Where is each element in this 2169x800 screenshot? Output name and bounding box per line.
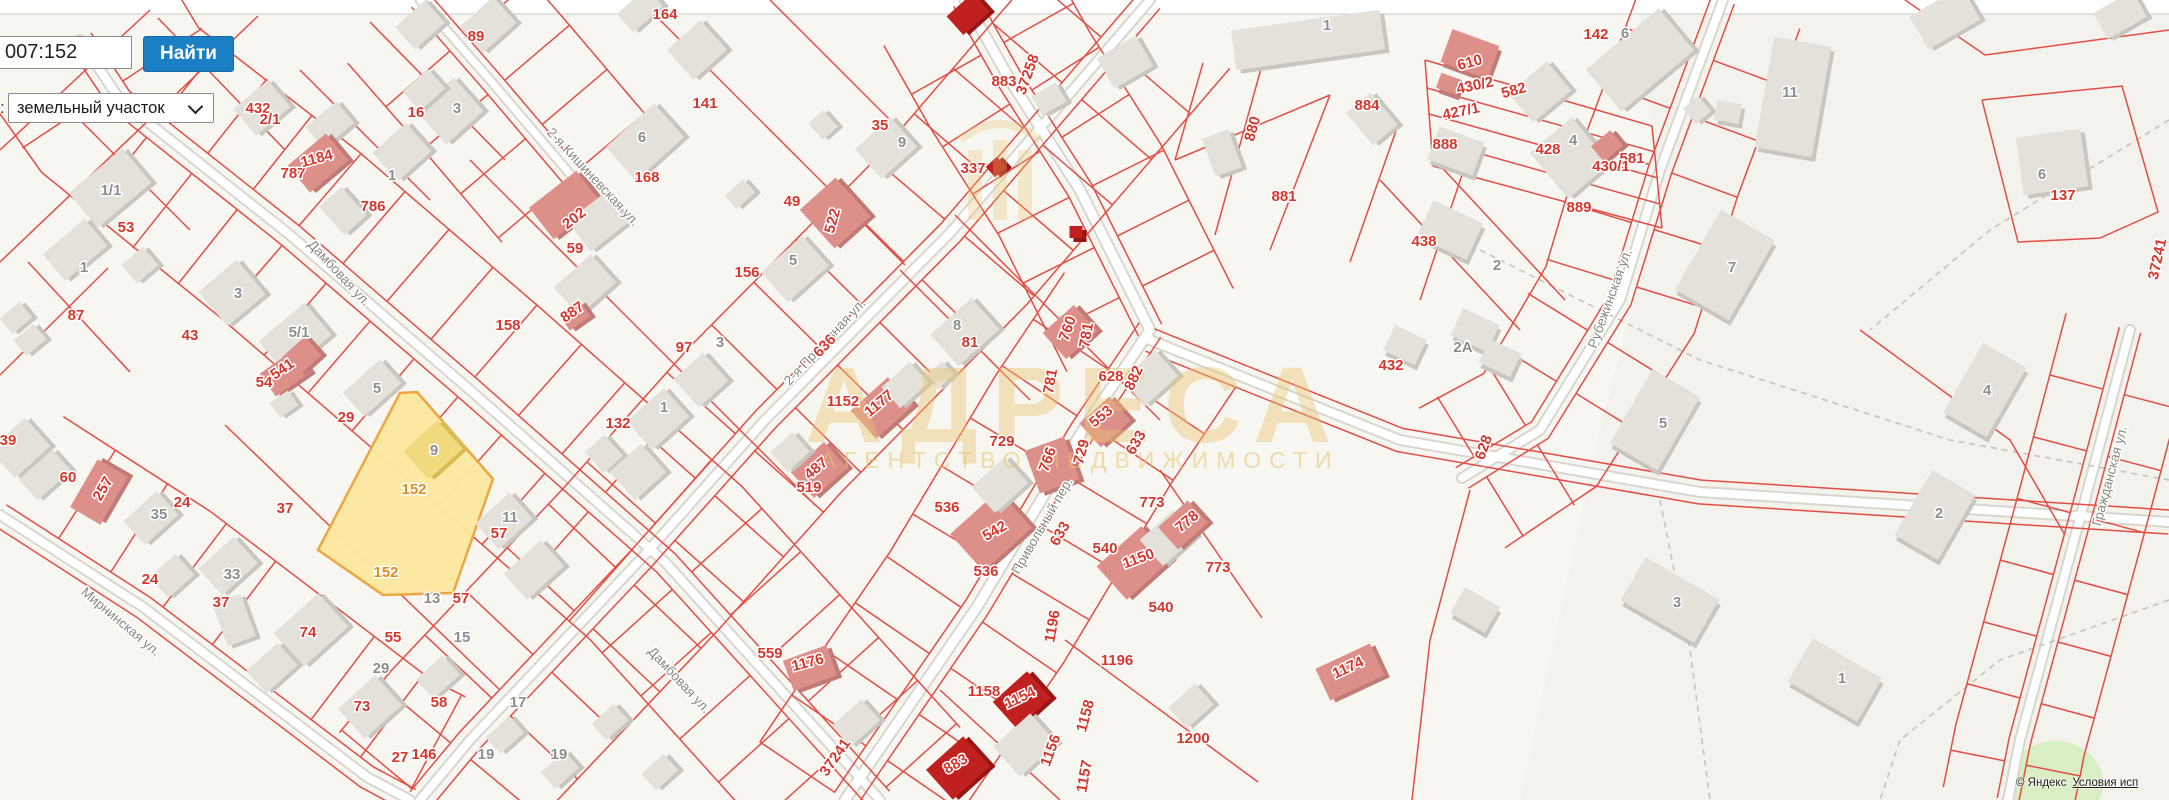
house-number: 8 bbox=[953, 317, 961, 334]
parcel-number: 1196 bbox=[1101, 652, 1134, 669]
parcel-number: 773 bbox=[1205, 559, 1230, 576]
house-number: 19 bbox=[478, 746, 495, 763]
house-number: 1 bbox=[660, 399, 668, 416]
parcel-number: 74 bbox=[300, 624, 317, 641]
parcel-number: 16 bbox=[408, 104, 425, 121]
house-number: 33 bbox=[224, 566, 241, 583]
house-number: 4 bbox=[1569, 132, 1578, 149]
parcel-number: 43 bbox=[182, 327, 199, 344]
house-number: 2А bbox=[1453, 339, 1472, 356]
parcel-number: 164 bbox=[652, 6, 678, 23]
house-number: 35 bbox=[151, 506, 168, 523]
building bbox=[2016, 129, 2088, 195]
house-number: 1 bbox=[80, 259, 88, 276]
object-type-select[interactable]: земельный участок bbox=[8, 93, 214, 123]
house-number: 11 bbox=[502, 509, 518, 526]
house-number: 5 bbox=[789, 252, 797, 269]
chevron-down-icon bbox=[188, 98, 204, 114]
parcel-number: 773 bbox=[1139, 494, 1164, 511]
house-number: 13 bbox=[424, 590, 441, 607]
parcel-number: 519 bbox=[796, 479, 821, 496]
parcel-number: 59 bbox=[567, 240, 584, 257]
parcel-number: 729 bbox=[989, 433, 1014, 450]
parcel-number: 786 bbox=[360, 198, 385, 215]
parcel-number: 438 bbox=[1411, 233, 1436, 250]
house-number: 5 bbox=[373, 380, 381, 397]
parcel-number: 881 bbox=[1271, 188, 1296, 205]
parcel-number: 57 bbox=[453, 590, 470, 607]
house-number: 19 bbox=[551, 746, 568, 763]
parcel-number: 888 bbox=[1432, 136, 1457, 153]
house-number: 15 bbox=[454, 629, 471, 646]
parcel-number: 536 bbox=[973, 563, 998, 580]
parcel-number: 536 bbox=[934, 499, 959, 516]
parcel-number: 57 bbox=[491, 525, 508, 542]
building bbox=[1714, 100, 1742, 124]
parcel-number: 1200 bbox=[1176, 730, 1209, 747]
house-number: 9 bbox=[898, 134, 906, 151]
parcel-number: 430/1 bbox=[1592, 158, 1630, 175]
parcel-number: 24 bbox=[142, 571, 159, 588]
house-number: 2 bbox=[1935, 505, 1943, 522]
house-number: 29 bbox=[373, 660, 390, 677]
parcel-number: 889 bbox=[1566, 199, 1591, 216]
map-svg[interactable]: АДРЕСААГЕНТСТВО НЕДВИЖИМОСТИДамбовая ул.… bbox=[0, 0, 2169, 800]
highlighted-parcel-number: 152 bbox=[401, 481, 426, 498]
house-number: 5 bbox=[1659, 415, 1667, 432]
parcel-number: 559 bbox=[757, 645, 782, 662]
house-number: 11 bbox=[1782, 84, 1798, 101]
house-number: 5/1 bbox=[289, 324, 310, 341]
object-type-value: земельный участок bbox=[9, 99, 190, 118]
parcel-number: 89 bbox=[468, 28, 485, 45]
type-label: : bbox=[0, 98, 5, 118]
parcel-number: 55 bbox=[385, 629, 402, 646]
parcel-number: 73 bbox=[354, 698, 371, 715]
parcel-number: 168 bbox=[634, 169, 659, 186]
parcel-number: 1152 bbox=[827, 393, 860, 410]
house-number: 6 bbox=[638, 129, 646, 146]
parcel-number: 141 bbox=[692, 95, 717, 112]
house-number: 1 bbox=[388, 167, 396, 184]
parcel-number: 883 bbox=[991, 73, 1016, 90]
parcel-number: 156 bbox=[734, 264, 759, 281]
house-number: 3 bbox=[234, 285, 242, 302]
parcel-number: 35 bbox=[872, 117, 889, 134]
cadastral-map-page: АДРЕСААГЕНТСТВО НЕДВИЖИМОСТИДамбовая ул.… bbox=[0, 0, 2169, 800]
parcel-number: 1158 bbox=[968, 683, 1001, 700]
house-number: 3 bbox=[1673, 594, 1681, 611]
parcel-number: 39 bbox=[0, 432, 16, 449]
parcel-number: 53 bbox=[118, 219, 135, 236]
house-number: 2 bbox=[1493, 257, 1501, 274]
parcel-number: 137 bbox=[2050, 187, 2075, 204]
map-attribution: © ЯндексУсловия исп bbox=[2016, 777, 2169, 789]
parcel-number: 158 bbox=[495, 317, 520, 334]
parcel-number: 337 bbox=[960, 160, 985, 177]
parcel-number: 60 bbox=[60, 469, 77, 486]
parcel-number: 2/1 bbox=[260, 111, 281, 128]
parcel-number: 37 bbox=[277, 500, 294, 517]
highlighted-parcel-number: 152 bbox=[373, 564, 398, 581]
parcel-number: 540 bbox=[1148, 599, 1173, 616]
parcel-number: 81 bbox=[962, 334, 979, 351]
parcel-number: 884 bbox=[1354, 97, 1380, 114]
parcel-number: 37 bbox=[213, 594, 230, 611]
building bbox=[1070, 226, 1083, 238]
terms-link[interactable]: Условия исп bbox=[2072, 777, 2138, 789]
house-number: 3 bbox=[716, 334, 724, 351]
parcel-number: 27 bbox=[392, 749, 409, 766]
parcel-number: 142 bbox=[1583, 26, 1608, 43]
house-number: 1/1 bbox=[101, 182, 122, 199]
house-number: 7 bbox=[1728, 259, 1736, 276]
find-button[interactable]: Найти bbox=[143, 36, 234, 72]
parcel-number: 24 bbox=[174, 494, 191, 511]
house-number: 4 bbox=[1983, 382, 1992, 399]
house-number: 6 bbox=[1621, 25, 1629, 42]
map-canvas[interactable]: АДРЕСААГЕНТСТВО НЕДВИЖИМОСТИДамбовая ул.… bbox=[0, 0, 2169, 800]
house-number: 3 bbox=[453, 100, 461, 117]
house-number: 9 bbox=[430, 442, 438, 459]
house-number: 17 bbox=[510, 694, 527, 711]
parcel-number: 132 bbox=[605, 415, 630, 432]
parcel-number: 29 bbox=[338, 409, 355, 426]
copyright-text: © Яндекс bbox=[2016, 777, 2066, 789]
parcel-number: 97 bbox=[676, 339, 693, 356]
parcel-number: 628 bbox=[1098, 368, 1123, 385]
parcel-number: 87 bbox=[68, 307, 85, 324]
parcel-number: 54 bbox=[256, 374, 273, 391]
cadastral-number-input[interactable] bbox=[0, 36, 132, 69]
parcel-number: 49 bbox=[784, 193, 801, 210]
parcel-number: 432 bbox=[1378, 357, 1403, 374]
parcel-number: 58 bbox=[431, 694, 448, 711]
parcel-number: 146 bbox=[411, 746, 436, 763]
house-number: 1 bbox=[1323, 17, 1331, 34]
parcel-number: 428 bbox=[1535, 141, 1560, 158]
house-number: 1 bbox=[1838, 670, 1846, 687]
house-number: 6 bbox=[2038, 166, 2046, 183]
parcel-number: 540 bbox=[1092, 540, 1117, 557]
